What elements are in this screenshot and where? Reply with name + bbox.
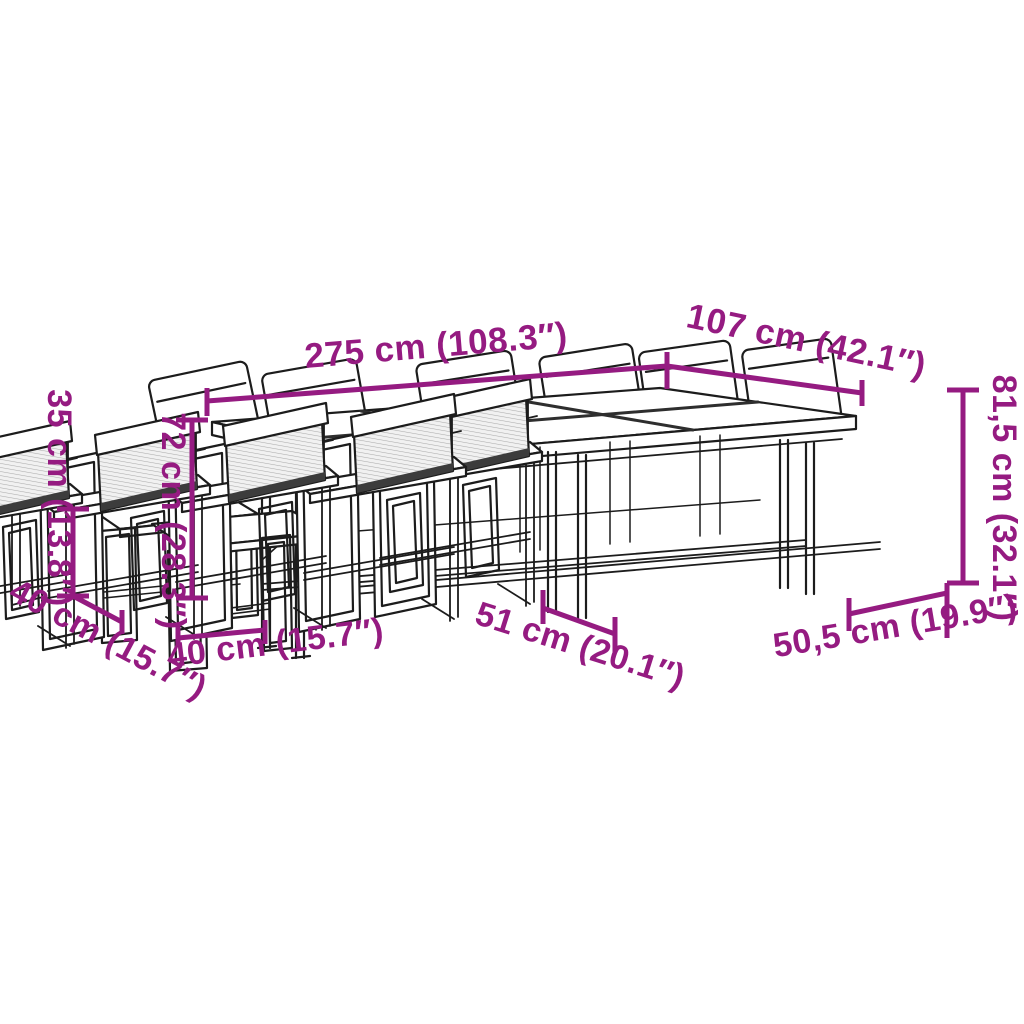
dim-label-stool-height: 35 cm (13.8″) (40, 389, 78, 606)
diagram-svg: 275 cm (108.3″) 107 cm (42.1″) 81,5 cm (… (0, 0, 1024, 1024)
furniture-line-art (0, 338, 880, 671)
dim-label-chair-width: 50,5 cm (19.9″) (770, 587, 1020, 665)
dim-label-chair-height: 81,5 cm (32.1″) (985, 375, 1023, 622)
dimension-labels: 275 cm (108.3″) 107 cm (42.1″) 81,5 cm (… (3, 296, 1023, 707)
dim-label-table-height: 72 cm (28.3″) (154, 412, 192, 629)
product-dimension-diagram: 275 cm (108.3″) 107 cm (42.1″) 81,5 cm (… (0, 0, 1024, 1024)
dim-label-seat-depth: 51 cm (20.1″) (471, 595, 690, 697)
